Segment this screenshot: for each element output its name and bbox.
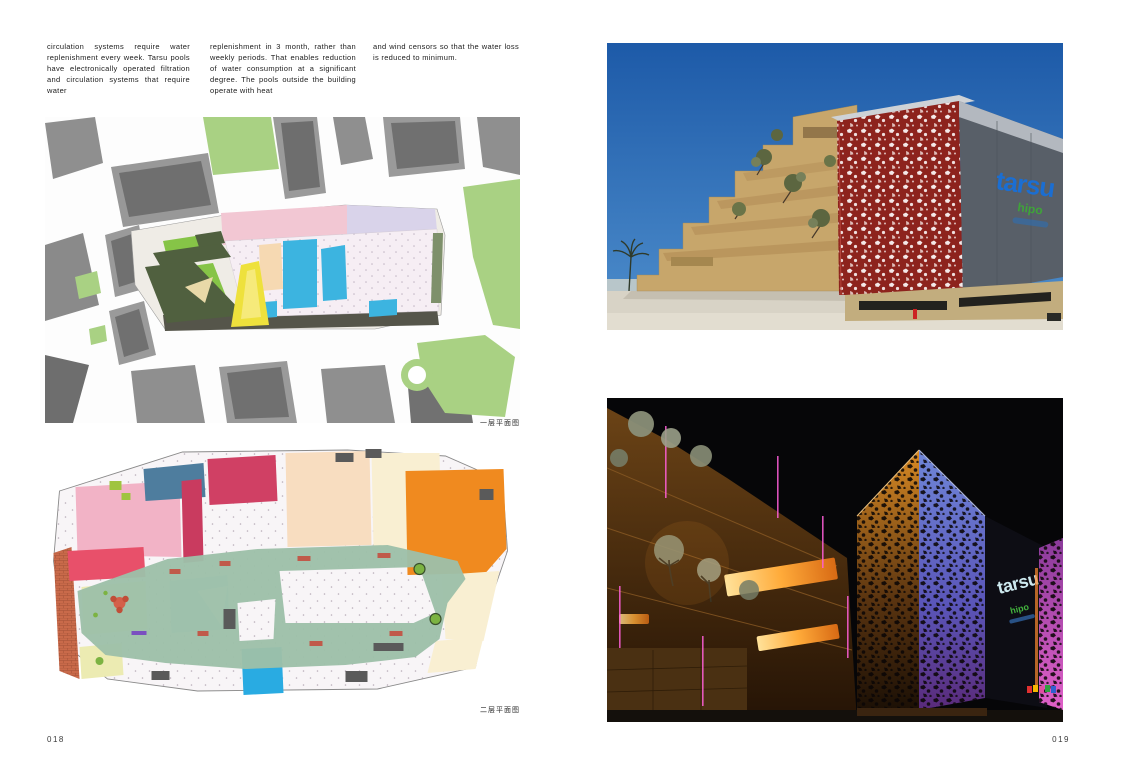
mall-site <box>131 205 445 331</box>
text-column-3: and wind censors so that the water loss … <box>373 42 519 64</box>
colorful-sign <box>1027 685 1056 693</box>
site-plan-map <box>45 117 520 423</box>
pool <box>321 245 347 301</box>
night-facade-photo: tarsu hipo <box>607 398 1063 722</box>
text-column-2: replenishment in 3 month, rather than we… <box>210 42 356 96</box>
page-number-left: 018 <box>47 735 65 744</box>
site-plan-caption: 一层平面图 <box>420 418 520 428</box>
day-facade-photo: tarsu hipo <box>607 43 1063 330</box>
pool <box>283 239 317 309</box>
hydrant <box>913 309 917 319</box>
site-plan-figure <box>45 117 520 423</box>
floor-plan-caption: 二层平面图 <box>420 705 520 715</box>
floor-plan <box>45 443 520 705</box>
book-spread: circulation systems require water replen… <box>0 0 1124 768</box>
page-number-right: 019 <box>1030 735 1070 744</box>
text-column-1: circulation systems require water replen… <box>47 42 190 96</box>
red-perforated-facade <box>831 95 975 295</box>
floor-plan-figure <box>45 443 520 703</box>
